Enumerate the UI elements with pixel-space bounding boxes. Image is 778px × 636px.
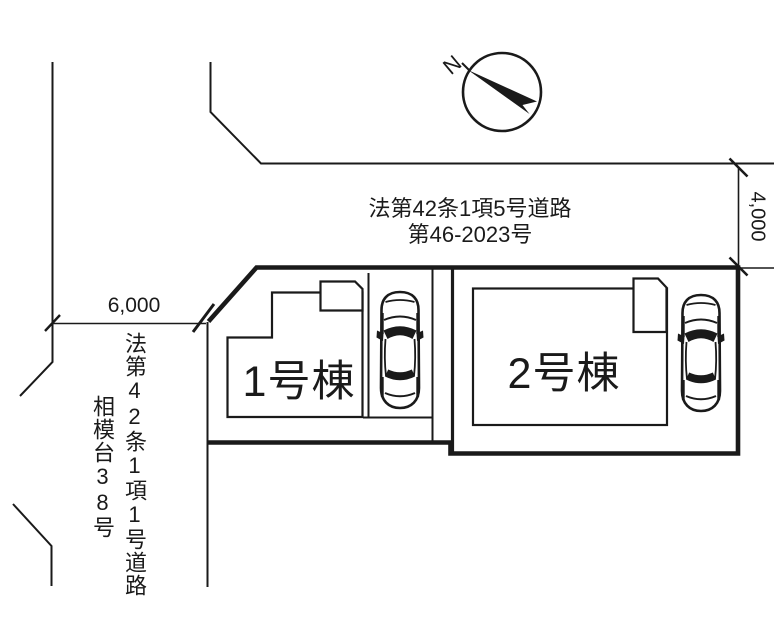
compass-north-label: N [438,50,466,79]
north-road-width-dimension: 4,000 [746,177,769,257]
west-road-west-edge-upper [20,62,53,396]
compass-needle [468,70,537,114]
car-1-icon [377,292,424,408]
north-arrow-icon: N [438,50,541,131]
north-road-label-line2: 第46-2023号 [330,217,610,249]
building-1-porch [321,282,363,311]
car-2-icon [678,295,725,411]
west-road-label-line1: 法第42条1項1号道路 [118,332,150,597]
west-road-label-line2: 相模台38号 [86,395,118,539]
site-plan: N 法第42条1項5号道路 第46-2023号 4,000 6,000 法第42… [0,0,778,636]
building-1-label: 1号棟 [224,347,374,409]
site-plan-drawing: N [0,0,778,636]
north-road-north-edge [211,62,775,164]
west-road-west-edge-lower [13,504,52,586]
building-2-porch [634,279,667,333]
west-road-width-dimension: 6,000 [92,294,176,318]
building-2-label: 2号棟 [489,339,639,401]
